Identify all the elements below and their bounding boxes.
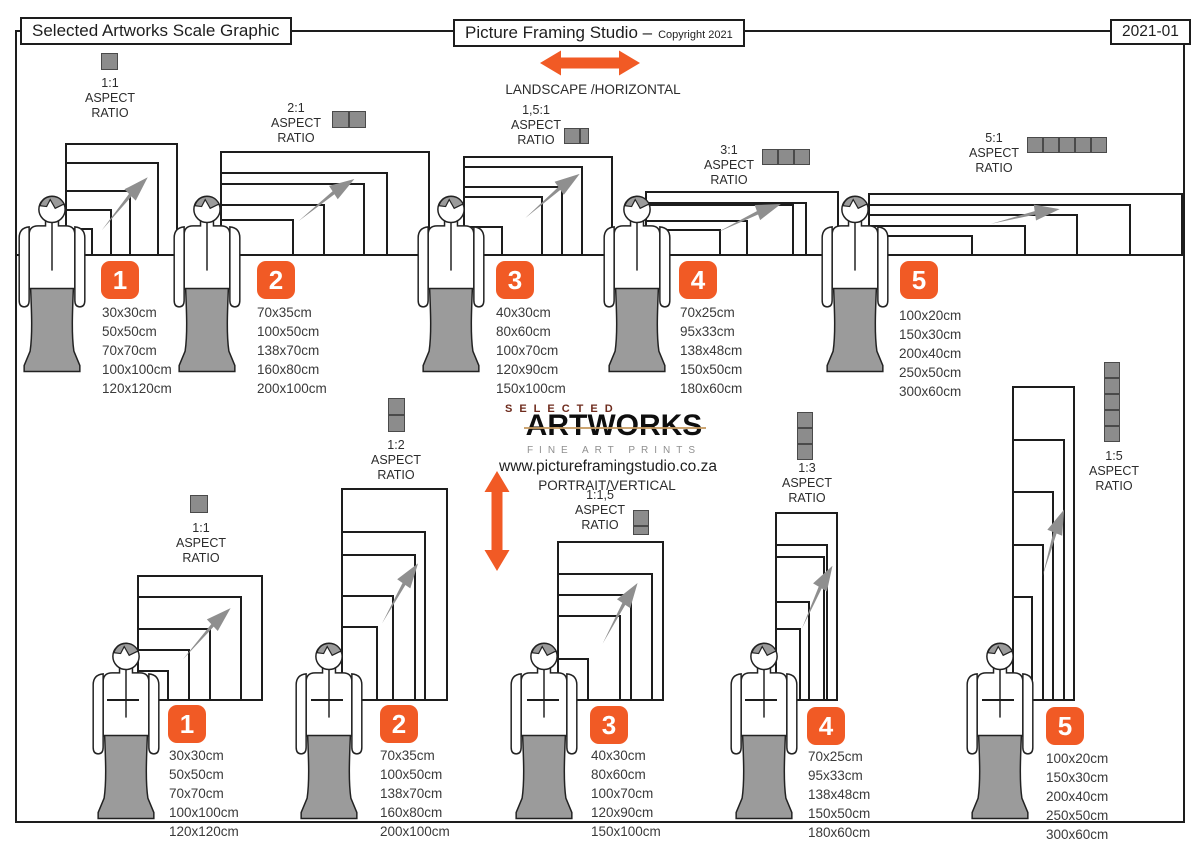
size-item: 180x60cm (808, 823, 870, 842)
size-item: 120x120cm (102, 379, 172, 398)
size-item: 300x60cm (899, 382, 961, 401)
size-item: 95x33cm (680, 322, 742, 341)
frame-baseline-extension (745, 699, 777, 701)
size-item: 100x70cm (496, 341, 566, 360)
size-item: 50x50cm (102, 322, 172, 341)
size-list: 30x30cm 50x50cm 70x70cm 100x100cm 120x12… (169, 746, 239, 841)
size-item: 120x90cm (496, 360, 566, 379)
size-list: 40x30cm 80x60cm 100x70cm 120x90cm 150x10… (591, 746, 661, 841)
page-title: Selected Artworks Scale Graphic (32, 21, 280, 40)
person-figure (821, 195, 889, 376)
size-item: 120x120cm (169, 822, 239, 841)
group-number-badge: 3 (590, 706, 628, 744)
size-list: 30x30cm 50x50cm 70x70cm 100x100cm 120x12… (102, 303, 172, 398)
size-list: 70x25cm 95x33cm 138x48cm 150x50cm 180x60… (680, 303, 742, 398)
size-item: 150x50cm (680, 360, 742, 379)
size-item: 138x48cm (808, 785, 870, 804)
size-item: 100x50cm (380, 765, 450, 784)
aspect-ratio-icon (633, 510, 649, 535)
logo-artworks: ARTWORKS (514, 409, 714, 443)
size-item: 150x30cm (899, 325, 961, 344)
studio-box: Picture Framing Studio – Copyright 2021 (453, 19, 745, 47)
aspect-ratio-label: 3:1 ASPECT RATIO (684, 143, 774, 188)
size-item: 70x35cm (257, 303, 327, 322)
version-number: 2021-01 (1122, 23, 1179, 40)
size-item: 100x100cm (169, 803, 239, 822)
frame-baseline-extension (311, 699, 343, 701)
size-list: 70x35cm 100x50cm 138x70cm 160x80cm 200x1… (380, 746, 450, 841)
person-figure (417, 195, 485, 376)
person-figure (173, 195, 241, 376)
size-item: 100x100cm (102, 360, 172, 379)
aspect-ratio-icon (1104, 362, 1120, 442)
size-item: 100x20cm (899, 306, 961, 325)
size-item: 100x50cm (257, 322, 327, 341)
size-item: 70x35cm (380, 746, 450, 765)
landscape-label: LANDSCAPE /HORIZONTAL (493, 82, 693, 97)
person-figure (295, 642, 363, 823)
logo-strike-line (524, 427, 706, 429)
frame-baseline-extension (982, 699, 1014, 701)
aspect-ratio-label: 1:5 ASPECT RATIO (1069, 449, 1159, 494)
size-item: 150x30cm (1046, 768, 1108, 787)
aspect-ratio-label: 2:1 ASPECT RATIO (251, 101, 341, 146)
size-item: 150x100cm (591, 822, 661, 841)
group-number-badge: 5 (900, 261, 938, 299)
version-box: 2021-01 (1110, 19, 1191, 45)
size-item: 250x50cm (1046, 806, 1108, 825)
group-number-badge: 5 (1046, 707, 1084, 745)
landscape-arrow-icon (540, 46, 640, 80)
size-item: 40x30cm (496, 303, 566, 322)
aspect-ratio-icon (332, 111, 366, 128)
frame-baseline-extension (107, 699, 139, 701)
size-item: 70x25cm (808, 747, 870, 766)
title-box: Selected Artworks Scale Graphic (20, 17, 292, 45)
size-list: 70x25cm 95x33cm 138x48cm 150x50cm 180x60… (808, 747, 870, 842)
size-list: 40x30cm 80x60cm 100x70cm 120x90cm 150x10… (496, 303, 566, 398)
size-item: 180x60cm (680, 379, 742, 398)
size-item: 40x30cm (591, 746, 661, 765)
studio-name: Picture Framing Studio – (465, 23, 652, 43)
size-item: 120x90cm (591, 803, 661, 822)
website-url: www.pictureframingstudio.co.za (498, 458, 718, 476)
size-item: 200x100cm (257, 379, 327, 398)
group-number-badge: 4 (807, 707, 845, 745)
size-item: 160x80cm (257, 360, 327, 379)
size-item: 70x70cm (169, 784, 239, 803)
group-number-badge: 2 (257, 261, 295, 299)
size-item: 100x20cm (1046, 749, 1108, 768)
size-item: 50x50cm (169, 765, 239, 784)
aspect-ratio-icon (564, 128, 589, 144)
size-list: 100x20cm 150x30cm 200x40cm 250x50cm 300x… (899, 306, 961, 401)
size-list: 100x20cm 150x30cm 200x40cm 250x50cm 300x… (1046, 749, 1108, 842)
size-item: 150x100cm (496, 379, 566, 398)
size-item: 100x70cm (591, 784, 661, 803)
size-item: 250x50cm (899, 363, 961, 382)
size-item: 138x70cm (257, 341, 327, 360)
person-figure (966, 642, 1034, 823)
size-item: 80x60cm (496, 322, 566, 341)
size-item: 70x25cm (680, 303, 742, 322)
size-item: 95x33cm (808, 766, 870, 785)
aspect-ratio-icon (388, 398, 405, 432)
aspect-ratio-label: 1:2 ASPECT RATIO (351, 438, 441, 483)
scale-graphic-page: Selected Artworks Scale Graphic Picture … (0, 0, 1200, 842)
aspect-ratio-icon (190, 495, 208, 513)
size-item: 200x40cm (899, 344, 961, 363)
copyright-text: Copyright 2021 (658, 29, 733, 41)
size-item: 138x70cm (380, 784, 450, 803)
logo-tagline: FINE ART PRINTS (514, 445, 714, 456)
size-item: 200x100cm (380, 822, 450, 841)
person-figure (18, 195, 86, 376)
size-item: 138x48cm (680, 341, 742, 360)
aspect-ratio-icon (797, 412, 813, 460)
aspect-ratio-icon (1027, 137, 1107, 153)
size-item: 70x70cm (102, 341, 172, 360)
size-item: 160x80cm (380, 803, 450, 822)
aspect-ratio-label: 1:1 ASPECT RATIO (156, 521, 246, 566)
aspect-ratio-label: 1:1,5 ASPECT RATIO (555, 488, 645, 533)
person-figure (510, 642, 578, 823)
size-item: 30x30cm (102, 303, 172, 322)
size-item: 80x60cm (591, 765, 661, 784)
size-list: 70x35cm 100x50cm 138x70cm 160x80cm 200x1… (257, 303, 327, 398)
size-item: 200x40cm (1046, 787, 1108, 806)
group-number-badge: 1 (101, 261, 139, 299)
group-number-badge: 2 (380, 705, 418, 743)
aspect-ratio-icon (762, 149, 810, 165)
person-figure (730, 642, 798, 823)
person-figure (603, 195, 671, 376)
group-number-badge: 3 (496, 261, 534, 299)
frame-baseline-extension (527, 699, 559, 701)
group-number-badge: 1 (168, 705, 206, 743)
aspect-ratio-label: 1:3 ASPECT RATIO (762, 461, 852, 506)
size-item: 300x60cm (1046, 825, 1108, 842)
aspect-ratio-label: 5:1 ASPECT RATIO (949, 131, 1039, 176)
size-item: 30x30cm (169, 746, 239, 765)
person-figure (92, 642, 160, 823)
aspect-ratio-icon (101, 53, 118, 70)
group-number-badge: 4 (679, 261, 717, 299)
aspect-ratio-label: 1:1 ASPECT RATIO (65, 76, 155, 121)
size-item: 150x50cm (808, 804, 870, 823)
